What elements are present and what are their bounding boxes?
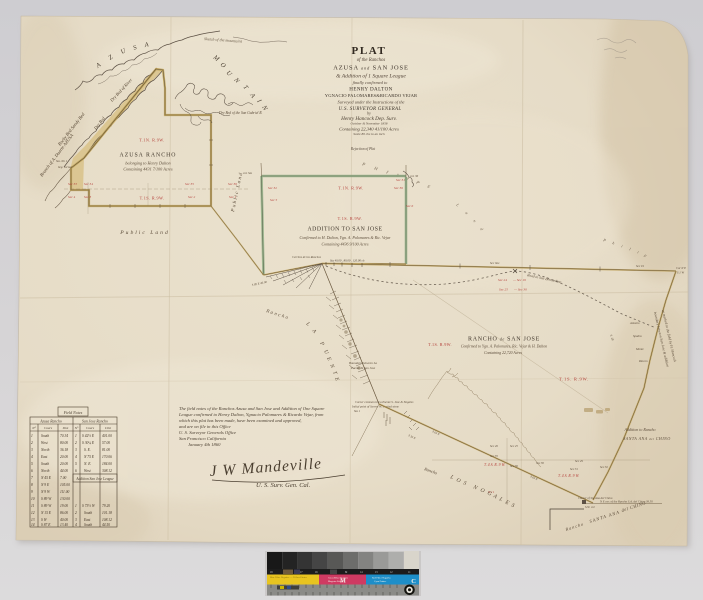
svg-text:5: 5 <box>31 462 33 466</box>
svg-text:S 1 W: S 1 W <box>677 271 685 275</box>
svg-text:70.34: 70.34 <box>60 434 68 438</box>
svg-text:N 15 E: N 15 E <box>40 511 52 515</box>
svg-text:S 87 E: S 87 E <box>41 523 51 527</box>
svg-text:5: 5 <box>75 462 77 466</box>
svg-text:HENRY DALTON: HENRY DALTON <box>349 87 393 93</box>
svg-text:20.00: 20.00 <box>60 455 68 459</box>
svg-text:Sec 25: Sec 25 <box>510 444 518 448</box>
svg-text:U. S. Surv. Gen. Cal.: U. S. Surv. Gen. Cal. <box>256 482 311 489</box>
svg-text:13: 13 <box>31 518 35 522</box>
svg-text:cor. Sta: cor. Sta <box>243 171 253 175</box>
svg-text:South: South <box>41 462 49 466</box>
svg-text:West: West <box>84 469 92 473</box>
svg-text:S 89 W: S 89 W <box>41 504 52 508</box>
svg-text:SANTA ANA del CHINO: SANTA ANA del CHINO <box>623 436 670 441</box>
svg-text:2: 2 <box>75 441 77 445</box>
svg-text:Surveyed under the Instruction: Surveyed under the Instructions of the <box>338 100 405 105</box>
svg-text:Sta. No 1: Sta. No 1 <box>56 159 68 163</box>
svg-text:1: 1 <box>75 504 77 508</box>
svg-text:4: 4 <box>75 523 77 527</box>
svg-text:N 9 W: N 9 W <box>40 490 51 494</box>
svg-text:10: 10 <box>31 497 35 501</box>
svg-text:North: North <box>40 448 50 452</box>
svg-text:San Francisco California: San Francisco California <box>179 436 227 441</box>
svg-text:Sec 35: Sec 35 <box>490 454 498 458</box>
svg-text:7.00: 7.00 <box>60 476 66 480</box>
svg-text:South: South <box>41 434 49 438</box>
svg-text:19.00: 19.00 <box>60 504 68 508</box>
svg-text:Cor N E: Cor N E <box>676 266 686 270</box>
svg-text:Rejection of Plat: Rejection of Plat <box>350 147 376 151</box>
svg-text:Sec 36: Sec 36 <box>394 186 403 190</box>
svg-text:East: East <box>83 518 91 522</box>
svg-text:36.18: 36.18 <box>60 448 68 452</box>
svg-text:Sec 31: Sec 31 <box>570 467 578 471</box>
svg-text:Dist: Dist <box>104 426 112 430</box>
svg-text:Magenta Printer: Magenta Printer <box>328 580 344 583</box>
svg-text:Scale 80 chs to an inch: Scale 80 chs to an inch <box>353 132 385 136</box>
svg-text:86.00: 86.00 <box>60 511 68 515</box>
svg-text:2: 2 <box>75 511 77 515</box>
svg-text:Cours: Cours <box>86 426 95 430</box>
svg-text:Antonio: Antonio <box>629 321 640 325</box>
svg-text:Cyan Printer: Cyan Printer <box>374 580 386 583</box>
svg-text:Sec 25: Sec 25 <box>499 288 508 292</box>
svg-text:3: 3 <box>75 518 77 522</box>
svg-text:RANCHO de SAN JOSE: RANCHO de SAN JOSE <box>468 337 540 343</box>
svg-text:PLAT: PLAT <box>352 45 387 57</box>
svg-text:belonging to Henry Dalton: belonging to Henry Dalton <box>125 161 170 166</box>
svg-text:11: 11 <box>31 504 35 508</box>
svg-text:7: 7 <box>31 476 33 480</box>
svg-text:S 30¼ E: S 30¼ E <box>82 441 95 445</box>
svg-text:9: 9 <box>31 490 33 494</box>
svg-text:44.50: 44.50 <box>102 523 110 527</box>
svg-text:beg. corner: beg. corner <box>58 165 73 169</box>
svg-text:Puente & San Jose: Puente & San Jose <box>350 366 376 370</box>
svg-text:Public Land: Public Land <box>119 230 170 236</box>
svg-text:January 4th 1860: January 4th 1860 <box>188 442 221 447</box>
svg-text:N 75 E: N 75 E <box>83 455 95 459</box>
svg-text:& Addition of 1 Square League: & Addition of 1 Square League <box>336 73 406 80</box>
svg-text:Addition to Rancho: Addition to Rancho <box>623 427 655 432</box>
svg-text:T.1S. R.9W.: T.1S. R.9W. <box>559 377 589 382</box>
svg-text:Monte: Monte <box>635 347 644 351</box>
svg-text:Sec 30: Sec 30 <box>536 461 544 465</box>
svg-text:North: North <box>40 469 50 473</box>
svg-text:Sec 24: Sec 24 <box>498 278 507 282</box>
svg-text:105.00: 105.00 <box>60 483 70 487</box>
svg-text:West: West <box>41 441 49 445</box>
svg-text:T.1S. R.9W.: T.1S. R.9W. <box>428 342 452 347</box>
svg-text:3: 3 <box>31 448 33 452</box>
svg-text:Sec line: Sec line <box>490 261 500 265</box>
svg-text:S.W. cor: S.W. cor <box>585 505 596 509</box>
svg-text:81.00: 81.00 <box>102 448 110 452</box>
svg-text:130.00: 130.00 <box>60 497 70 501</box>
svg-text:401.00: 401.00 <box>102 434 112 438</box>
svg-text:Sec 2: Sec 2 <box>188 195 196 199</box>
svg-text:— Sec 19: — Sec 19 <box>512 278 526 282</box>
svg-text:Spadra: Spadra <box>633 334 642 338</box>
svg-text:N 45 E: N 45 E <box>40 476 52 480</box>
svg-text:Sec 34: Sec 34 <box>84 182 93 186</box>
svg-text:57.00: 57.00 <box>102 441 110 445</box>
svg-text:Corner common to La Puente S.: Corner common to La Puente S. Jose & Nog… <box>355 400 414 404</box>
svg-text:Rincon: Rincon <box>638 359 648 363</box>
svg-text:South: South <box>84 523 92 527</box>
svg-text:T.1N. R.9W.: T.1N. R.9W. <box>338 186 363 191</box>
svg-text:184.00: 184.00 <box>102 462 112 466</box>
svg-text:and are on file in this Office: and are on file in this Office <box>179 424 231 429</box>
svg-text:Sec 32: Sec 32 <box>600 465 608 469</box>
svg-text:101.18: 101.18 <box>102 511 112 515</box>
svg-text:AZUSA and SAN JOSE: AZUSA and SAN JOSE <box>333 65 409 72</box>
svg-text:N°: N° <box>31 426 36 430</box>
svg-text:Cerritos de los Ranchos: Cerritos de los Ranchos <box>292 255 322 259</box>
svg-text:East: East <box>40 455 48 459</box>
svg-text:79.20: 79.20 <box>102 504 110 508</box>
svg-text:12: 12 <box>31 511 35 515</box>
svg-text:S 42½ E: S 42½ E <box>82 434 95 438</box>
svg-text:111.00: 111.00 <box>60 490 70 494</box>
svg-text:170.06: 170.06 <box>102 455 112 459</box>
svg-text:T.1S. R.9W.: T.1S. R.9W. <box>140 196 165 201</box>
svg-text:80.00: 80.00 <box>60 441 68 445</box>
svg-text:Sec 31: Sec 31 <box>396 178 405 182</box>
svg-text:8: 8 <box>31 483 33 487</box>
svg-text:Addition San Jose League: Addition San Jose League <box>75 477 114 481</box>
svg-text:Containing 4431 7/100 Acres: Containing 4431 7/100 Acres <box>123 167 173 172</box>
svg-text:South: South <box>84 511 92 515</box>
svg-text:Dist: Dist <box>62 426 70 430</box>
svg-text:6: 6 <box>75 469 77 473</box>
svg-text:40.00: 40.00 <box>60 518 68 522</box>
svg-text:finally confirmed to: finally confirmed to <box>353 80 388 85</box>
svg-text:Sec 26: Sec 26 <box>490 444 498 448</box>
svg-text:1: 1 <box>75 434 77 438</box>
svg-text:Dry Bed of the San Gabriel R.: Dry Bed of the San Gabriel R. <box>218 111 263 115</box>
svg-text:Sec 29: Sec 29 <box>575 459 583 463</box>
svg-text:Boundary between La: Boundary between La <box>349 361 377 365</box>
svg-text:T. 4 S. R. 9 W.: T. 4 S. R. 9 W. <box>484 463 505 467</box>
svg-text:N°: N° <box>74 426 79 430</box>
svg-text:C: C <box>411 578 416 585</box>
svg-text:— Sec 30: — Sec 30 <box>513 288 527 292</box>
svg-text:S 73½ W: S 73½ W <box>82 504 96 508</box>
svg-text:YGNACIO PALOMARES&RICARDO VEJA: YGNACIO PALOMARES&RICARDO VEJAR <box>325 93 418 98</box>
svg-text:20.00: 20.00 <box>60 462 68 466</box>
svg-text:1: 1 <box>31 434 33 438</box>
svg-text:108.12: 108.12 <box>102 518 112 522</box>
svg-text:S. E.: S. E. <box>84 448 91 452</box>
svg-text:14: 14 <box>31 523 35 527</box>
svg-text:Containing 4436 9/100 Acres: Containing 4436 9/100 Acres <box>322 242 369 247</box>
svg-text:3: 3 <box>75 448 77 452</box>
svg-text:Sta 1: Sta 1 <box>354 409 361 413</box>
svg-text:Sec 32: Sec 32 <box>268 186 277 190</box>
svg-text:Azusa Rancho: Azusa Rancho <box>39 420 62 424</box>
svg-text:cor. 36: cor. 36 <box>410 174 419 178</box>
svg-text:2: 2 <box>31 441 33 445</box>
svg-text:Sec 4: Sec 4 <box>68 195 76 199</box>
svg-text:T. 4 S. R. 9 W.: T. 4 S. R. 9 W. <box>558 474 579 478</box>
svg-text:Sec 19: Sec 19 <box>636 264 644 268</box>
svg-text:N. E.: N. E. <box>83 462 91 466</box>
svg-text:of the Ranchos: of the Ranchos <box>357 58 386 63</box>
svg-text:S 89 W: S 89 W <box>41 497 52 501</box>
svg-text:Sta 40.00 . 80.00 . 120.00 ch: Sta 40.00 . 80.00 . 120.00 ch <box>330 259 365 263</box>
svg-text:Sec 3: Sec 3 <box>84 195 92 199</box>
svg-text:San Jose Rancho: San Jose Rancho <box>82 420 108 424</box>
svg-text:AZUSA RANCHO: AZUSA RANCHO <box>120 153 177 159</box>
svg-text:Cours: Cours <box>44 426 53 430</box>
svg-text:Sec 33: Sec 33 <box>68 182 77 186</box>
svg-text:S W: S W <box>41 518 48 522</box>
svg-text:13.40: 13.40 <box>60 523 68 527</box>
svg-text:Sec 6: Sec 6 <box>406 204 414 208</box>
svg-text:Initial point of Survey W. m: Initial point of Survey W. marked stone <box>351 405 399 409</box>
svg-text:The field notes of the Ranchos: The field notes of the Ranchos Azusa and… <box>179 406 324 411</box>
svg-text:4: 4 <box>31 455 33 459</box>
svg-text:Sec 5: Sec 5 <box>270 198 278 202</box>
svg-text:U. S. Surveyor Generals Office: U. S. Surveyor Generals Office <box>179 430 236 435</box>
svg-text:4: 4 <box>75 455 77 459</box>
svg-text:ADDITION TO SAN JOSE: ADDITION TO SAN JOSE <box>307 227 382 233</box>
svg-text:N 9 E: N 9 E <box>40 483 50 487</box>
svg-text:by: by <box>367 111 371 116</box>
svg-text:44.00: 44.00 <box>60 469 68 473</box>
svg-text:308.12: 308.12 <box>102 469 112 473</box>
svg-text:Blue Filter Negative — Yellow: Blue Filter Negative — Yellow Printer <box>270 576 307 579</box>
svg-text:T.1S. R.9W.: T.1S. R.9W. <box>338 216 363 221</box>
svg-text:Sec 36: Sec 36 <box>510 464 518 468</box>
svg-text:Sec 35: Sec 35 <box>185 182 194 186</box>
svg-text:October & November 1858: October & November 1858 <box>350 122 387 126</box>
svg-text:Field Notes: Field Notes <box>63 410 83 415</box>
svg-text:6: 6 <box>31 469 33 473</box>
svg-text:T.1N. R.9W.: T.1N. R.9W. <box>139 138 164 143</box>
